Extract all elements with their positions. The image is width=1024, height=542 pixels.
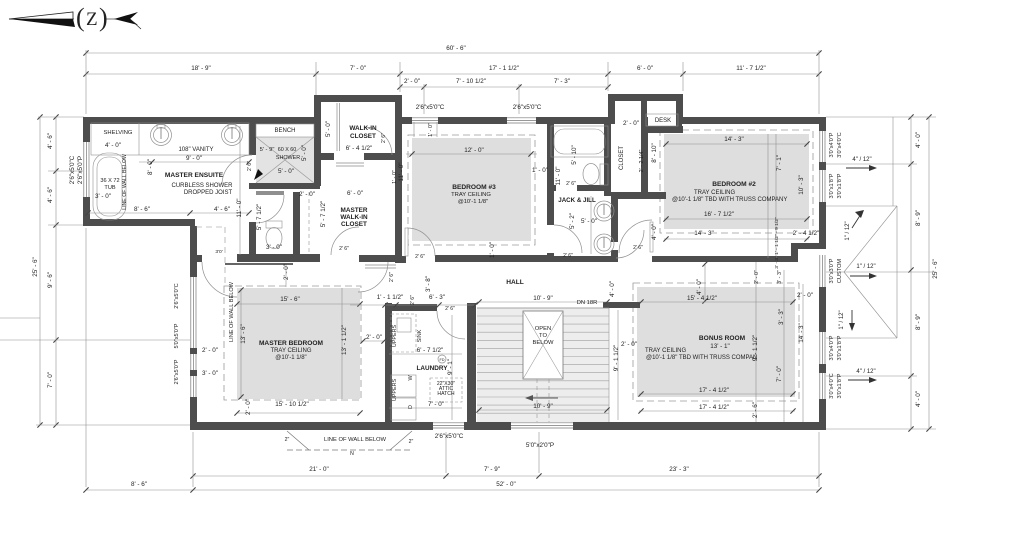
svg-text:5' - 0": 5' - 0" xyxy=(325,121,332,137)
svg-text:2' - 0": 2' - 0" xyxy=(299,191,315,198)
svg-text:@10'-1 1/8" TBD WITH TRUSS COM: @10'-1 1/8" TBD WITH TRUSS COMPANY xyxy=(672,197,787,203)
svg-text:LAUNDRY: LAUNDRY xyxy=(416,365,448,372)
svg-text:9' - 1 1/2": 9' - 1 1/2" xyxy=(613,345,620,372)
svg-text:3'0"x4'0"C: 3'0"x4'0"C xyxy=(829,373,835,398)
svg-text:4" / 12": 4" / 12" xyxy=(852,157,871,163)
svg-text:2' 6": 2' 6" xyxy=(381,133,387,143)
svg-text:LINE OF WALL BELOW: LINE OF WALL BELOW xyxy=(324,437,387,443)
svg-text:2' - 0": 2' - 0" xyxy=(797,292,813,299)
svg-text:4' - 0": 4' - 0" xyxy=(915,132,922,148)
svg-text:12' - 0": 12' - 0" xyxy=(464,147,484,154)
svg-text:1" / 12": 1" / 12" xyxy=(845,221,851,240)
svg-text:BELOW: BELOW xyxy=(533,340,554,346)
svg-text:UPPERS: UPPERS xyxy=(392,325,398,348)
svg-text:FD: FD xyxy=(439,358,444,362)
svg-text:@10'-1 1/8" TBD WITH TRUSS COM: @10'-1 1/8" TBD WITH TRUSS COMPAN xyxy=(646,355,757,361)
svg-text:2' 6": 2' 6" xyxy=(445,306,455,312)
svg-text:2' - 0": 2' - 0" xyxy=(623,120,639,127)
svg-text:BEDROOM #3: BEDROOM #3 xyxy=(452,184,496,191)
svg-text:D: D xyxy=(408,405,414,409)
svg-text:BEDROOM #2: BEDROOM #2 xyxy=(712,181,756,188)
svg-text:MASTER ENSUITE: MASTER ENSUITE xyxy=(165,172,224,179)
svg-text:DESK: DESK xyxy=(655,118,671,124)
svg-text:(: ( xyxy=(76,3,85,32)
svg-text:8' - 6": 8' - 6" xyxy=(134,206,150,213)
svg-text:3'0"x1'8"P: 3'0"x1'8"P xyxy=(837,373,843,398)
svg-text:13' - 6": 13' - 6" xyxy=(240,324,247,344)
svg-text:8' - 10": 8' - 10" xyxy=(651,143,658,163)
svg-text:5' - 2": 5' - 2" xyxy=(569,213,576,229)
svg-text:HATCH: HATCH xyxy=(437,391,454,397)
svg-text:3'0"x4'0"P: 3'0"x4'0"P xyxy=(829,132,835,157)
svg-text:10' - 3": 10' - 3" xyxy=(798,175,805,195)
svg-text:108" VANITY: 108" VANITY xyxy=(178,147,213,153)
svg-text:6' - 7 1/2": 6' - 7 1/2" xyxy=(417,347,444,354)
svg-text:SINK: SINK xyxy=(417,329,423,342)
svg-text:3'0"x1'8"P: 3'0"x1'8"P xyxy=(837,335,843,360)
svg-text:13' - 1 1/2": 13' - 1 1/2" xyxy=(341,325,348,355)
svg-text:2' 6": 2' 6" xyxy=(415,254,425,260)
svg-text:15' - 4 1/2": 15' - 4 1/2" xyxy=(687,295,717,302)
svg-text:9' - 1": 9' - 1" xyxy=(447,359,454,375)
svg-text:5' - 0": 5' - 0" xyxy=(278,168,294,175)
svg-text:3'0"x3'0"P: 3'0"x3'0"P xyxy=(829,258,835,283)
svg-text:2' 6": 2' 6" xyxy=(633,245,643,251)
svg-text:SHELVING: SHELVING xyxy=(104,130,133,136)
svg-text:1' - 0": 1' - 0" xyxy=(428,123,434,137)
svg-text:JACK & JILL: JACK & JILL xyxy=(558,197,596,204)
svg-text:10' - 9": 10' - 9" xyxy=(533,295,553,302)
svg-text:60' - 6": 60' - 6" xyxy=(446,45,466,52)
svg-text:3' - 0": 3' - 0" xyxy=(95,193,111,200)
svg-text:CUSTOM: CUSTOM xyxy=(837,259,843,283)
svg-text:2' - 2 1/4": 2' - 2 1/4" xyxy=(639,150,645,173)
svg-text:DROPPED JOIST: DROPPED JOIST xyxy=(184,190,233,196)
svg-text:9' - 6": 9' - 6" xyxy=(47,272,54,288)
svg-text:2' - 0": 2' - 0" xyxy=(754,270,760,284)
svg-text:7' - 0": 7' - 0" xyxy=(47,372,54,388)
svg-text:2' - 0": 2' - 0" xyxy=(202,347,218,354)
svg-text:HALL: HALL xyxy=(506,279,524,286)
svg-text:2": 2" xyxy=(285,437,290,443)
svg-text:2' - 6": 2' - 6" xyxy=(752,402,759,418)
svg-text:2'6"x5'0"C: 2'6"x5'0"C xyxy=(69,155,76,184)
svg-text:LINE OF WALL BELOW: LINE OF WALL BELOW xyxy=(122,154,128,210)
svg-text:1" / 12": 1" / 12" xyxy=(856,264,875,270)
svg-text:LINE OF WALL BELOW: LINE OF WALL BELOW xyxy=(229,281,235,342)
svg-text:7' - 10 1/2": 7' - 10 1/2" xyxy=(456,78,486,85)
svg-text:3'0"x4'0"P: 3'0"x4'0"P xyxy=(829,335,835,360)
svg-text:8' - 9": 8' - 9" xyxy=(915,314,922,330)
svg-text:8' - 9": 8' - 9" xyxy=(915,210,922,226)
svg-text:OPEN: OPEN xyxy=(535,326,551,332)
svg-text:1' - 1 1/2": 1' - 1 1/2" xyxy=(377,294,404,301)
svg-text:21' - 0": 21' - 0" xyxy=(309,466,329,473)
svg-text:2' 6": 2' 6" xyxy=(566,181,576,187)
svg-text:36 X 72: 36 X 72 xyxy=(100,178,119,184)
svg-text:15' - 10 1/2": 15' - 10 1/2" xyxy=(275,401,309,408)
svg-text:7' - 9": 7' - 9" xyxy=(484,466,500,473)
svg-text:TRAY CEILING: TRAY CEILING xyxy=(645,348,686,354)
svg-text:UPPERS: UPPERS xyxy=(392,379,398,402)
svg-text:3' - 0": 3' - 0" xyxy=(202,370,218,377)
svg-text:8' - 6": 8' - 6" xyxy=(131,481,147,488)
svg-text:BENCH: BENCH xyxy=(274,128,295,134)
svg-text:14' - 3": 14' - 3" xyxy=(798,323,805,343)
svg-text:SHOWER: SHOWER xyxy=(276,155,300,161)
svg-text:2": 2" xyxy=(409,439,414,445)
svg-text:TUB: TUB xyxy=(104,185,115,191)
svg-text:3' - 3": 3' - 3" xyxy=(778,309,785,325)
svg-text:2' - 0": 2' - 0" xyxy=(283,264,290,280)
svg-text:2' 6": 2' 6" xyxy=(563,253,573,259)
svg-text:9' - 0": 9' - 0" xyxy=(186,155,202,162)
svg-text:WALK-IN: WALK-IN xyxy=(340,214,368,221)
svg-text:3'0"x1'8"P: 3'0"x1'8"P xyxy=(829,173,835,198)
svg-text:11' - 0": 11' - 0" xyxy=(236,198,243,217)
svg-text:4' - 0": 4' - 0" xyxy=(651,224,658,240)
svg-text:4' - 0": 4' - 0" xyxy=(105,142,121,149)
svg-text:6' - 0": 6' - 0" xyxy=(347,190,363,197)
svg-text:4' - 0": 4' - 0" xyxy=(609,281,616,297)
svg-text:TRAY CEILING: TRAY CEILING xyxy=(694,190,735,196)
svg-text:5'0"x2'0"P: 5'0"x2'0"P xyxy=(526,442,554,449)
svg-text:3' - 3": 3' - 3" xyxy=(777,270,783,284)
svg-text:5' - 0": 5' - 0" xyxy=(581,218,597,225)
svg-text:2' 6": 2' 6" xyxy=(389,272,395,282)
svg-text:1' - 0": 1' - 0" xyxy=(489,242,496,258)
svg-text:MASTER: MASTER xyxy=(341,207,368,214)
svg-text:2' - 0": 2' - 0" xyxy=(245,399,252,415)
svg-text:DN 18R: DN 18R xyxy=(577,300,598,306)
svg-text:2' - 0": 2' - 0" xyxy=(404,78,420,85)
svg-text:2'6"x5'0"C: 2'6"x5'0"C xyxy=(513,104,542,111)
svg-text:5'0"x5'0"P: 5'0"x5'0"P xyxy=(174,323,180,348)
svg-text:5' - 10": 5' - 10" xyxy=(571,145,578,165)
svg-text:17' - 4 1/2": 17' - 4 1/2" xyxy=(699,387,729,394)
svg-text:2' - 4 1/2": 2' - 4 1/2" xyxy=(793,230,820,237)
svg-text:4' - 0": 4' - 0" xyxy=(696,279,703,295)
svg-text:4' - 6": 4' - 6" xyxy=(47,187,54,203)
svg-text:3' - 8": 3' - 8" xyxy=(425,276,432,292)
svg-text:11' - 0": 11' - 0" xyxy=(555,166,562,185)
svg-text:WALK-IN: WALK-IN xyxy=(349,125,377,132)
svg-text:CLOSET: CLOSET xyxy=(341,221,367,228)
svg-text:5' - 0": 5' - 0" xyxy=(301,145,308,161)
svg-text:@10'-1 1/8": @10'-1 1/8" xyxy=(275,355,306,361)
svg-text:TRAY CEILING: TRAY CEILING xyxy=(451,192,491,198)
svg-text:3'0': 3'0' xyxy=(215,249,222,255)
svg-text:16' - 7 1/2": 16' - 7 1/2" xyxy=(704,211,734,218)
svg-text:7' - 0": 7' - 0" xyxy=(776,366,783,382)
svg-text:14' - 3": 14' - 3" xyxy=(724,136,744,143)
svg-text:6' - 4 1/2": 6' - 4 1/2" xyxy=(346,145,373,152)
svg-text:N: N xyxy=(350,451,354,457)
svg-text:CURBLESS SHOWER: CURBLESS SHOWER xyxy=(171,183,233,189)
svg-text:TO: TO xyxy=(539,333,547,339)
svg-text:18' - 9": 18' - 9" xyxy=(191,65,211,72)
svg-text:10' - 9": 10' - 9" xyxy=(533,403,553,410)
svg-text:7' - 0": 7' - 0" xyxy=(350,65,366,72)
svg-text:Z: Z xyxy=(86,9,98,30)
svg-text:2'6"x5'0"P: 2'6"x5'0"P xyxy=(174,359,180,384)
svg-text:2' 6": 2' 6" xyxy=(410,295,416,305)
svg-text:): ) xyxy=(99,3,108,32)
svg-text:7' - 3": 7' - 3" xyxy=(554,78,570,85)
svg-text:4' - 6": 4' - 6" xyxy=(214,206,230,213)
svg-text:13' - 1": 13' - 1" xyxy=(710,343,730,350)
svg-text:4' - 0": 4' - 0" xyxy=(915,391,922,407)
svg-text:11' - 7 1/2": 11' - 7 1/2" xyxy=(736,65,766,72)
svg-text:1' - 0": 1' - 0" xyxy=(532,167,548,174)
svg-text:3' - 0": 3' - 0" xyxy=(266,244,282,251)
svg-text:7' - 0": 7' - 0" xyxy=(428,401,444,408)
svg-text:4" / 12": 4" / 12" xyxy=(856,369,875,375)
svg-text:6' - 0": 6' - 0" xyxy=(637,65,653,72)
svg-text:60 X 60: 60 X 60 xyxy=(278,147,297,153)
svg-text:3' - 3" 1' - 1 1/2" - 9 1/2": 3' - 3" 1' - 1 1/2" - 9 1/2" xyxy=(774,217,780,269)
svg-text:11' - 0": 11' - 0" xyxy=(398,162,405,181)
svg-text:CLOSET: CLOSET xyxy=(619,146,625,170)
svg-text:1" / 12": 1" / 12" xyxy=(839,310,845,329)
svg-text:8' - 0": 8' - 0" xyxy=(147,159,154,175)
svg-text:17' - 1 1/2": 17' - 1 1/2" xyxy=(489,65,519,72)
svg-text:MASTER BEDROOM: MASTER BEDROOM xyxy=(259,340,324,347)
svg-text:2' - 0": 2' - 0" xyxy=(621,341,637,348)
svg-text:25' - 6": 25' - 6" xyxy=(32,257,39,277)
svg-text:CLOSET: CLOSET xyxy=(350,133,376,140)
svg-text:3'0"x1'8"P: 3'0"x1'8"P xyxy=(837,173,843,198)
svg-text:BONUS ROOM: BONUS ROOM xyxy=(699,335,746,342)
svg-text:2' 6": 2' 6" xyxy=(339,246,349,252)
svg-text:3'0"x4'0"C: 3'0"x4'0"C xyxy=(837,132,843,157)
svg-text:2'6"x5'0"C: 2'6"x5'0"C xyxy=(435,433,464,440)
svg-text:7' - 1": 7' - 1" xyxy=(776,155,783,171)
svg-text:5' - 9": 5' - 9" xyxy=(260,147,275,153)
svg-text:TRAY CEILING: TRAY CEILING xyxy=(270,348,311,354)
svg-text:5' - 7 1/2": 5' - 7 1/2" xyxy=(320,201,327,228)
svg-text:2' 6": 2' 6" xyxy=(247,161,253,171)
svg-text:9' - 1 1/2": 9' - 1 1/2" xyxy=(752,335,759,362)
svg-text:25' - 6": 25' - 6" xyxy=(932,259,939,279)
svg-text:2'6"x5'0"C: 2'6"x5'0"C xyxy=(416,104,445,111)
svg-text:52' - 0": 52' - 0" xyxy=(496,481,516,488)
svg-text:2'6"x5'0"C: 2'6"x5'0"C xyxy=(174,283,180,308)
svg-text:17' - 4 1/2": 17' - 4 1/2" xyxy=(699,404,729,411)
svg-text:4' - 6": 4' - 6" xyxy=(47,133,54,149)
svg-text:2'6"x5'0"P: 2'6"x5'0"P xyxy=(77,156,84,184)
svg-text:@10'-1 1/8": @10'-1 1/8" xyxy=(458,199,488,205)
svg-text:14' - 3": 14' - 3" xyxy=(694,230,714,237)
svg-text:5' - 7 1/2": 5' - 7 1/2" xyxy=(256,204,263,231)
svg-text:1' - 0": 1' - 0" xyxy=(392,170,398,184)
svg-text:2' - 0": 2' - 0" xyxy=(366,334,382,341)
svg-text:6' - 3": 6' - 3" xyxy=(429,294,445,301)
svg-text:23' - 3": 23' - 3" xyxy=(669,466,689,473)
svg-text:15' - 6": 15' - 6" xyxy=(280,296,300,303)
